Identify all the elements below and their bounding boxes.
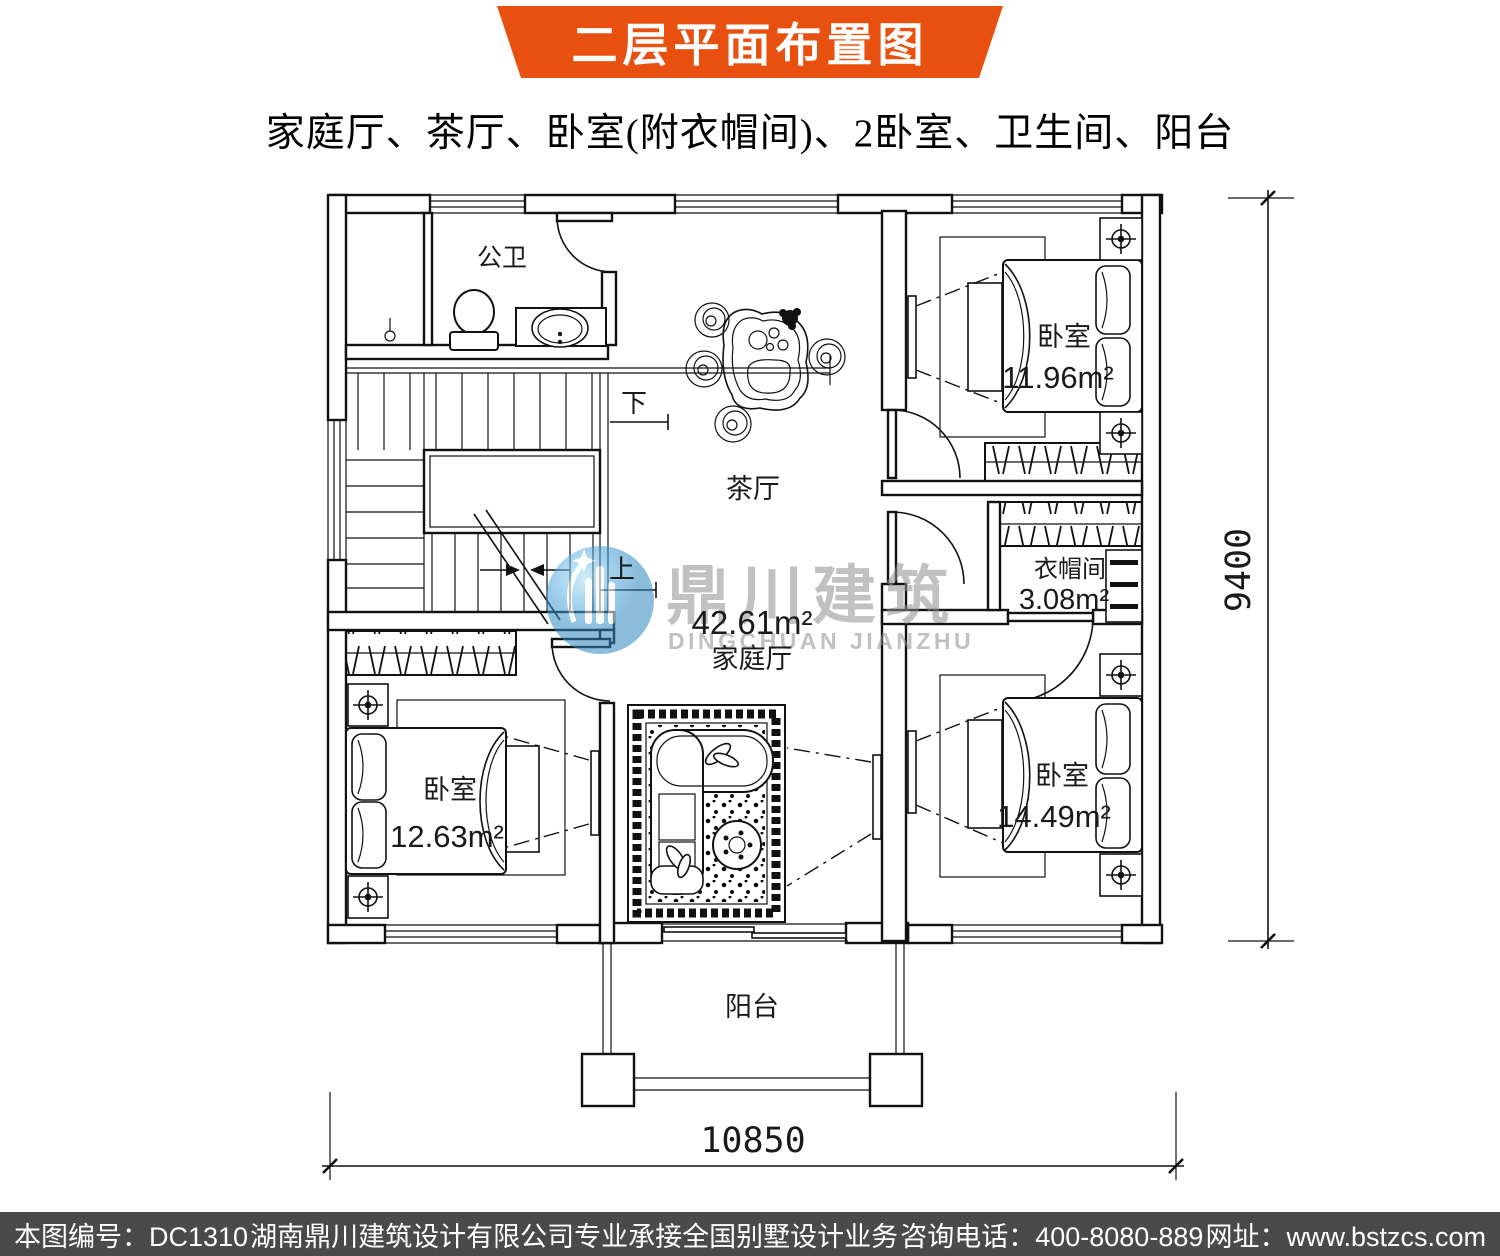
footer-phone: 咨询电话：400-8080-889: [900, 1215, 1203, 1254]
drawing-sheet: 二层平面布置图 家庭厅、茶厅、卧室(附衣帽间)、2卧室、卫生间、阳台: [0, 0, 1500, 1256]
bedroom-tr-area: 11.96m²: [1002, 360, 1113, 395]
stairs-down-label: 下: [621, 388, 647, 418]
bedroom-bl-area: 12.63m²: [390, 819, 504, 854]
footer-bar: 本图编号：DC1310 湖南鼎川建筑设计有限公司专业承接全国别墅设计业务 咨询电…: [0, 1212, 1500, 1256]
dimension-bottom: 10850: [700, 1121, 805, 1161]
footer-website: 网址：www.bstzcs.com: [1205, 1215, 1486, 1254]
stairs-up-label: 上: [609, 554, 635, 584]
tea-hall-label: 茶厅: [726, 474, 780, 504]
bedroom-br-area: 14.49m²: [997, 799, 1111, 834]
bedroom-br-label: 卧室: [1035, 761, 1089, 791]
family-hall-sofa-area: [628, 705, 881, 922]
bathroom-label: 公卫: [477, 244, 527, 272]
cloakroom-label: 衣帽间: [1034, 556, 1106, 583]
footer-sheet-no: 本图编号：DC1310: [14, 1215, 248, 1254]
footer-company: 湖南鼎川建筑设计有限公司专业承接全国别墅设计业务: [250, 1215, 898, 1254]
floor-plan: 鼎川建筑 DINGCHUAN JIANZHU 公卫 下 上 茶厅 卧室 11.9…: [0, 0, 1500, 1256]
bedroom-bottom-right-furniture: [908, 654, 1142, 896]
bedroom-tr-label: 卧室: [1037, 322, 1091, 352]
dimension-right: 9400: [1219, 528, 1259, 612]
bedroom-top-right-furniture: [908, 218, 1142, 454]
balcony-label: 阳台: [725, 992, 779, 1022]
bedroom-bl-label: 卧室: [423, 775, 477, 805]
family-hall-label: 家庭厅: [712, 644, 793, 674]
family-hall-area: 42.61m²: [691, 604, 812, 641]
cloakroom-area: 3.08m²: [1019, 584, 1110, 616]
bathroom-fixtures: [385, 290, 606, 350]
balcony-structure: [582, 943, 922, 1106]
